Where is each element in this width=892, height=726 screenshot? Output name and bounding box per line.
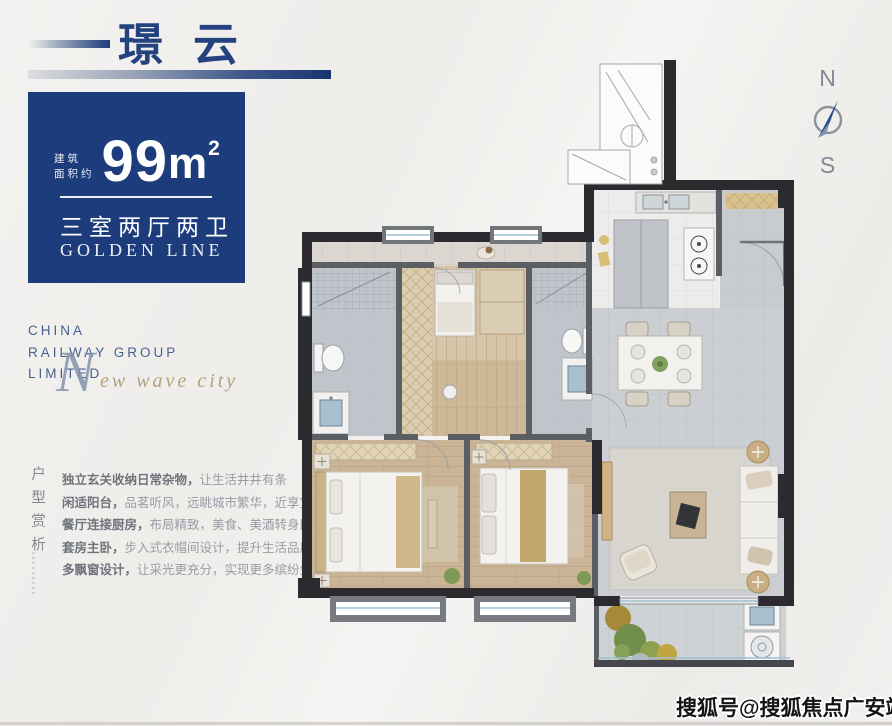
layout-type-label: 三室两厅两卫 (60, 208, 234, 242)
vertical-section-title: 户型赏析 (27, 466, 48, 560)
master-bench (428, 500, 437, 548)
area-unit: m (168, 136, 207, 192)
corridor-stool (443, 385, 457, 399)
feature-item: 套房主卧，步入式衣帽间设计，提升生活品质感 (62, 537, 312, 560)
laundry-sink (744, 604, 780, 630)
bath-window (302, 282, 310, 316)
bedroom2-wardrobe (476, 443, 552, 460)
side-table-top (747, 441, 769, 463)
area-value: 99 (102, 136, 169, 188)
watermark-text: 搜狐号@搜狐焦点广安站 (676, 692, 892, 722)
feature-lead: 套房主卧， (62, 541, 125, 555)
compass-needle-icon (800, 90, 856, 148)
feature-item: 闲适阳台，品茗听风，远眺城市繁华，近享宜境人生 (62, 492, 312, 515)
brand-script-text: ew wave city (100, 370, 238, 393)
area-label-line2: 面积约 (54, 167, 95, 182)
card-divider (60, 196, 212, 198)
feature-item: 独立玄关收纳日常杂物，让生活井井有条 (62, 469, 312, 492)
tv-console (602, 462, 612, 540)
master-bed (316, 472, 422, 572)
brand-script-initial: N (56, 338, 95, 405)
poster-page: 璟云 建筑 面积约 99 m 2 三室两厅两卫 GOLDEN LINE CHIN… (0, 0, 892, 726)
feature-rest: 步入式衣帽间设计，提升生活品质感 (125, 541, 325, 555)
area-row: 建筑 面积约 99 m 2 (54, 136, 220, 192)
compass-north-label: N (800, 66, 856, 90)
master-toilet (314, 344, 344, 372)
compass: N S (800, 66, 856, 177)
vertical-fineprint-decor (32, 552, 35, 596)
bay-window-bedroom2 (474, 596, 576, 622)
master-wardrobe (316, 443, 416, 460)
bay-window-master (330, 596, 446, 622)
page-title: 璟云 (118, 8, 268, 73)
series-name-label: GOLDEN LINE (60, 240, 223, 261)
feature-lead: 闲适阳台， (62, 496, 125, 510)
entry-doormat (726, 193, 780, 209)
kitchen-decor (599, 235, 609, 245)
area-label: 建筑 面积约 (54, 152, 95, 182)
brand-line-2: RAILWAY GROUP (28, 342, 178, 364)
bedroom2-nightstand (472, 450, 486, 464)
top-window-1 (382, 226, 434, 244)
side-table-bottom (747, 571, 769, 593)
feature-lead: 多飘窗设计， (62, 563, 137, 577)
area-superscript: 2 (208, 136, 220, 162)
stair-annex-outline (568, 64, 662, 184)
bath2-shower (530, 266, 592, 308)
feature-item: 餐厅连接厨房，布局精致，美食、美酒转身即享 (62, 514, 312, 537)
floorplan (296, 56, 800, 716)
feature-item: 多飘窗设计，让采光更充分，实现更多缤纷生活 (62, 559, 312, 582)
area-label-line1: 建筑 (54, 152, 95, 167)
compass-south-label: S (800, 153, 856, 177)
title-dash-decor (28, 40, 110, 48)
master-vanity-sink (313, 392, 349, 434)
sofa (740, 466, 778, 574)
area-info-card: 建筑 面积约 99 m 2 三室两厅两卫 GOLDEN LINE (28, 92, 245, 283)
feature-list: 独立玄关收纳日常杂物，让生活井井有条 闲适阳台，品茗听风，远眺城市繁华，近享宜境… (62, 469, 312, 582)
kitchen-stove (684, 228, 714, 280)
feature-lead: 独立玄关收纳日常杂物， (62, 473, 200, 487)
bottom-edge-line (0, 722, 892, 725)
feature-lead: 餐厅连接厨房， (62, 518, 150, 532)
coffee-table (670, 492, 706, 538)
title-gradient-rule (28, 70, 331, 79)
balcony-ornament (477, 247, 495, 260)
master-shower (312, 266, 396, 310)
kitchen-sink-counter (636, 192, 716, 213)
feature-rest: 让生活井井有条 (200, 473, 288, 487)
walkin-closet-floor (402, 266, 432, 436)
brand-line-1: CHINA (28, 320, 178, 342)
master-plant (444, 568, 460, 584)
bedroom3-bed (435, 270, 524, 336)
balcony-sliding-door (620, 598, 758, 604)
top-window-2 (490, 226, 542, 244)
bedroom2-bed (480, 468, 568, 564)
top-balcony-floor (310, 238, 586, 266)
bedroom2-plant (577, 571, 591, 585)
master-nightstand-top (314, 454, 330, 469)
